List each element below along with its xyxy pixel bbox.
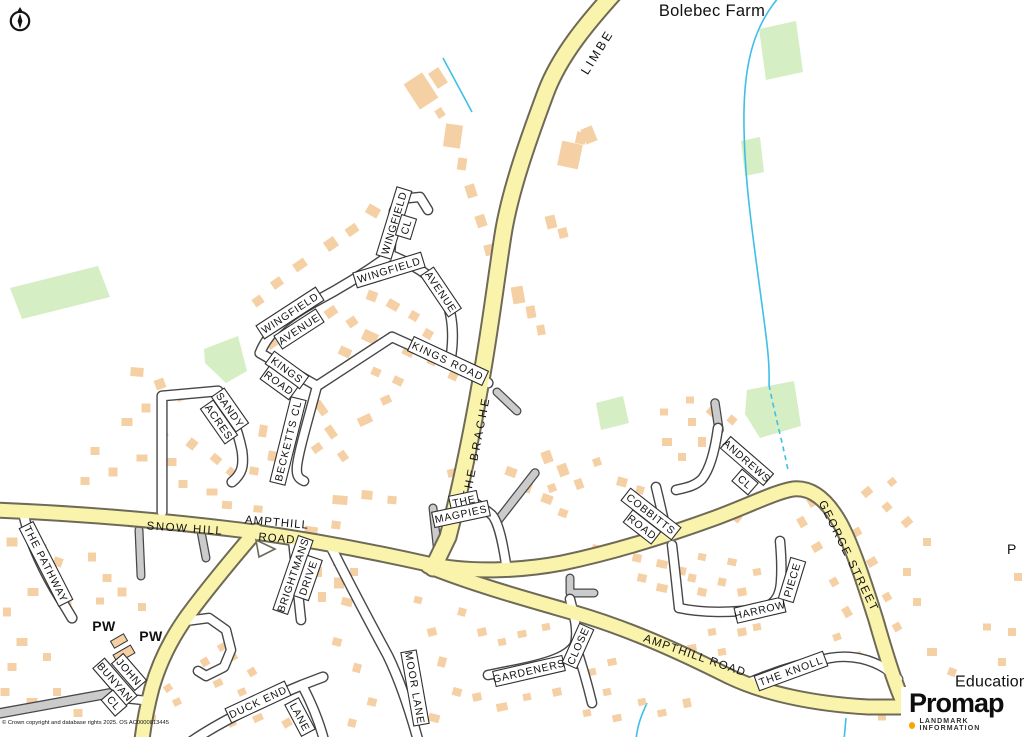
building [913, 598, 921, 606]
track-road [139, 530, 141, 576]
building [737, 587, 747, 596]
north-compass-icon [6, 5, 34, 35]
street-label: P [1007, 541, 1017, 557]
building [387, 496, 397, 505]
street-label-text: PW [92, 618, 116, 634]
building [7, 538, 18, 547]
map-viewport[interactable]: LIMBEBolebec FarmWINGFIELDCLWINGFIELDAVE… [0, 0, 1024, 737]
map-canvas[interactable]: LIMBEBolebec FarmWINGFIELDCLWINGFIELDAVE… [0, 0, 1024, 737]
building [688, 418, 696, 426]
street-label-text: P [1007, 541, 1017, 557]
building [717, 577, 726, 586]
building [698, 437, 706, 447]
building [923, 538, 931, 546]
building [17, 638, 28, 646]
building [109, 468, 118, 477]
building [1, 688, 10, 696]
building [249, 466, 259, 475]
building [253, 505, 263, 513]
building [983, 624, 991, 631]
building [752, 623, 761, 631]
green-area [759, 21, 803, 80]
building [457, 157, 468, 170]
building [318, 592, 326, 602]
building [91, 447, 100, 455]
building [137, 455, 148, 462]
building [737, 627, 747, 636]
building [1008, 628, 1016, 636]
building [88, 553, 96, 562]
building [222, 501, 233, 510]
building [707, 628, 716, 636]
building [168, 458, 177, 466]
building [3, 608, 11, 617]
landmark-tagline: LANDMARK INFORMATION [919, 718, 1024, 732]
building [1014, 573, 1022, 581]
building [687, 573, 696, 582]
building [142, 404, 151, 413]
building [122, 418, 133, 426]
building [927, 648, 937, 656]
building [686, 397, 694, 404]
promap-logo: Promap LANDMARK INFORMATION [901, 687, 1024, 737]
building [130, 367, 144, 377]
building [717, 648, 726, 656]
street-label: PW [139, 628, 163, 644]
building [662, 438, 672, 446]
building [103, 574, 112, 582]
building [43, 653, 51, 661]
building [536, 324, 546, 335]
street-label-text: PW [139, 628, 163, 644]
building [8, 663, 17, 671]
building [361, 490, 373, 500]
landmark-dot-icon [909, 722, 915, 729]
building [331, 520, 341, 529]
building [678, 453, 686, 461]
building [118, 588, 127, 597]
street-label: PW [92, 618, 116, 634]
building [207, 489, 218, 496]
street-label: Bolebec Farm [659, 2, 765, 20]
building [28, 588, 39, 596]
building [74, 709, 83, 717]
building [81, 477, 90, 485]
building [179, 480, 188, 488]
building [752, 568, 761, 576]
building [443, 123, 463, 148]
building [998, 658, 1006, 666]
building [332, 495, 348, 505]
building [903, 568, 911, 576]
building [138, 603, 146, 611]
building [660, 409, 668, 416]
building [53, 688, 61, 696]
promap-logo-text: Promap [909, 689, 1024, 717]
copyright-attribution: © Crown copyright and database rights 20… [2, 719, 169, 725]
street-label-text: Bolebec Farm [659, 2, 765, 20]
building [96, 598, 104, 605]
